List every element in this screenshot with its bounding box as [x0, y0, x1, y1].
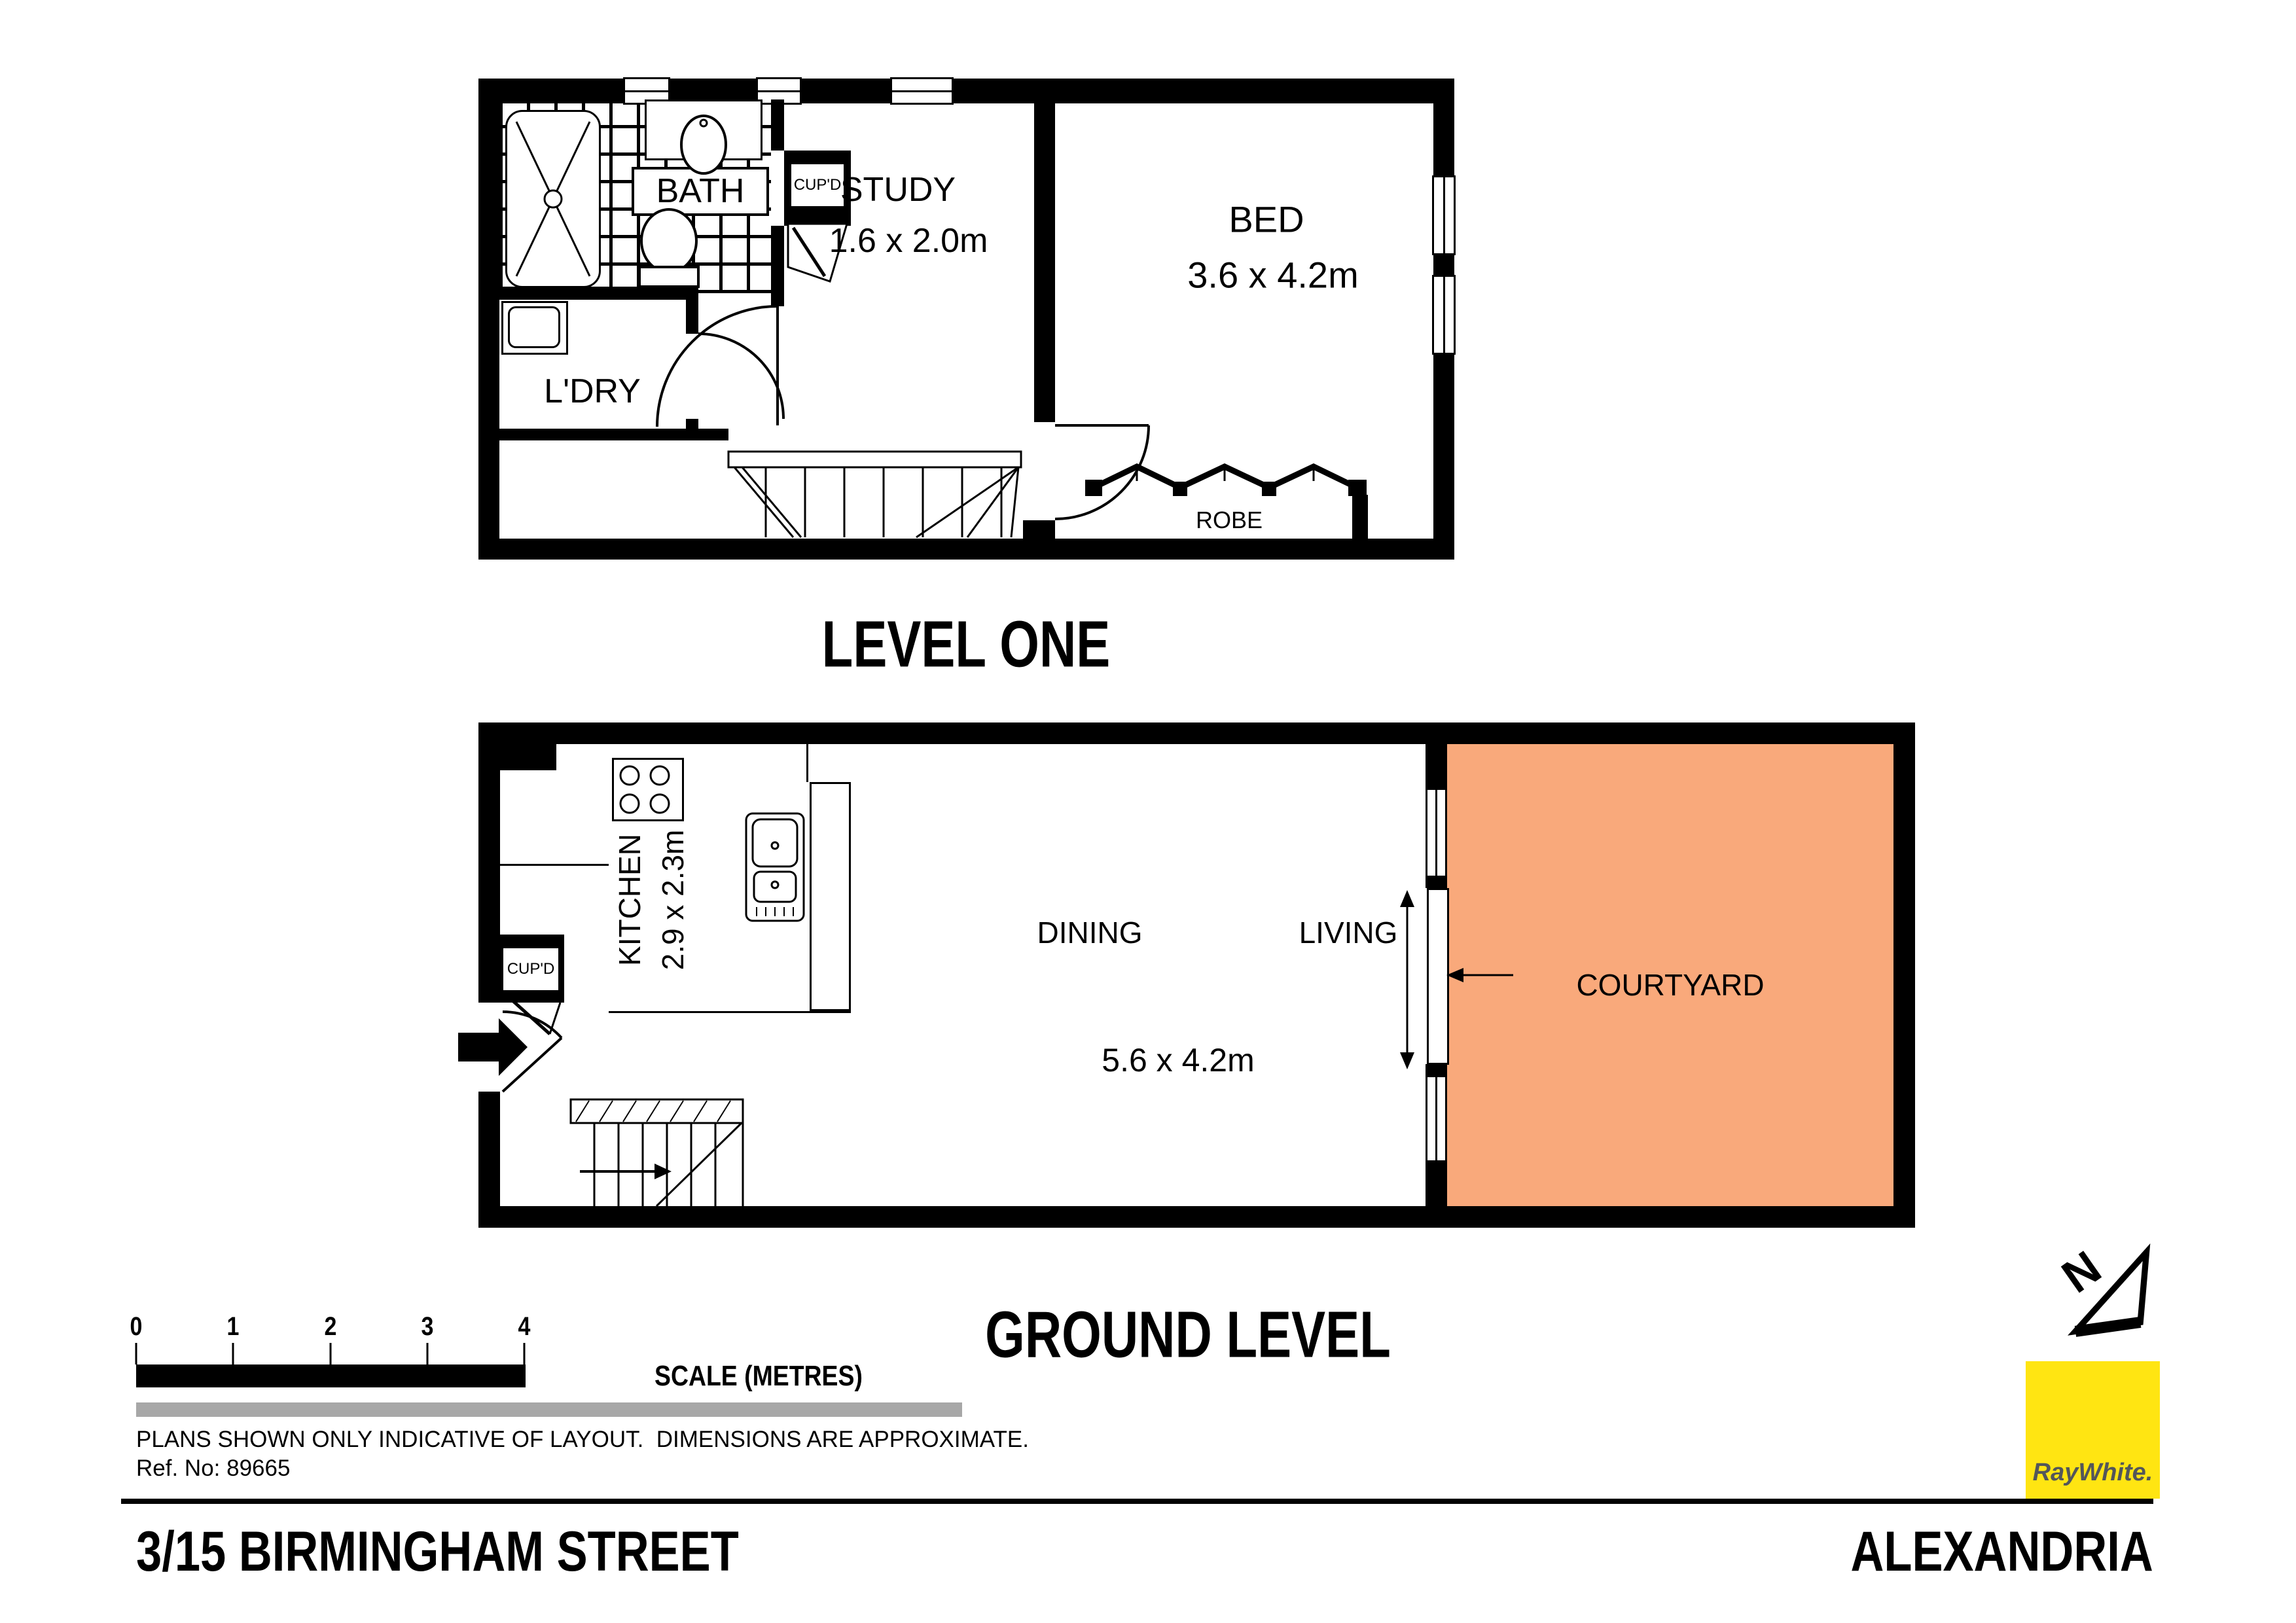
scale-gray-bar	[136, 1402, 962, 1417]
room-label-dining: DINING	[1037, 915, 1143, 950]
l1-wall-bath-laundry-divider	[499, 287, 698, 300]
level-one-title: LEVEL ONE	[822, 607, 1111, 683]
room-label-robe: ROBE	[1196, 507, 1263, 534]
kitchen-counter	[810, 782, 851, 1011]
window-icon	[1426, 1075, 1447, 1162]
scale-tick-0: 0	[130, 1312, 143, 1342]
scale-tick-1: 1	[227, 1312, 240, 1342]
scale-tick-2: 2	[325, 1312, 337, 1342]
footer-address: 3/15 BIRMINGHAM STREET	[136, 1520, 739, 1584]
room-label-bath: BATH	[656, 171, 745, 211]
g-wall-courtyard-b	[1426, 878, 1447, 888]
g-wall-right	[1893, 722, 1915, 1228]
sliding-door-icon	[1427, 888, 1449, 1065]
laundry-sink-bowl	[508, 306, 560, 348]
vanity-icon	[645, 99, 762, 160]
kitchen-bench-bottom	[609, 1011, 851, 1013]
north-arrow-icon: N	[2053, 1241, 2146, 1331]
footer-divider	[121, 1499, 2153, 1504]
l1-wall-study-bed-divider	[1034, 99, 1055, 422]
scale-tick-4: 4	[518, 1312, 531, 1342]
room-label-kitchen: KITCHEN	[612, 834, 647, 966]
g-wall-left-b	[478, 1092, 500, 1206]
room-label-laundry: L'DRY	[544, 372, 641, 411]
ref-number: Ref. No: 89665	[136, 1455, 290, 1482]
room-label-bed: BED	[1229, 198, 1304, 241]
g-wall-bottom	[478, 1206, 1915, 1228]
room-label-living: LIVING	[1299, 915, 1398, 950]
raywhite-logo-text: RayWhite.	[2026, 1459, 2160, 1487]
stove-icon	[612, 758, 684, 821]
l1-wall-bottom	[478, 539, 1454, 560]
l1-wall-bath-right-lower	[771, 226, 784, 306]
room-dims-study: 1.6 x 2.0m	[829, 221, 988, 260]
g-wall-courtyard-c	[1426, 1064, 1447, 1075]
window-icon	[1432, 175, 1456, 255]
scale-bar-fill	[136, 1364, 526, 1387]
window-icon	[1432, 275, 1456, 355]
l1-wall-laundry-right-a	[686, 300, 698, 334]
floorplan-page: N BATH CUP'D STUDY 1.6 x 2.0m BED 3.6 x …	[0, 0, 2296, 1623]
l1-wall-laundry-bottom	[499, 429, 728, 440]
ground-level-title: GROUND LEVEL	[985, 1298, 1391, 1373]
room-label-cupd-g: CUP'D	[507, 960, 555, 978]
room-label-cupd-l1: CUP'D	[794, 176, 842, 194]
disclaimer-text: PLANS SHOWN ONLY INDICATIVE OF LAYOUT. D…	[136, 1427, 1029, 1453]
l1-wall-laundry-right-b	[686, 419, 698, 429]
kitchen-bench-line-h	[500, 864, 609, 866]
g-wall-top	[478, 722, 1915, 744]
window-icon	[1426, 788, 1447, 878]
footer-suburb: ALEXANDRIA	[1851, 1520, 2153, 1584]
kitchen-counter-line	[806, 744, 808, 782]
scale-bar-label: SCALE (METRES)	[655, 1360, 863, 1393]
room-label-courtyard: COURTYARD	[1576, 967, 1764, 1003]
g-wall-left-a	[478, 744, 500, 935]
shower-icon	[505, 110, 601, 288]
room-dims-kitchen: 2.9 x 2.3m	[655, 830, 691, 971]
svg-text:N: N	[2053, 1241, 2110, 1303]
room-dims-bed: 3.6 x 4.2m	[1187, 254, 1358, 296]
l1-wall-left	[478, 79, 499, 560]
room-dims-living: 5.6 x 4.2m	[1102, 1041, 1254, 1079]
scale-tick-3: 3	[422, 1312, 434, 1342]
room-label-study: STUDY	[840, 170, 956, 209]
g-wall-courtyard-d	[1426, 1162, 1447, 1206]
window-icon	[890, 77, 954, 105]
raywhite-logo: RayWhite.	[2026, 1361, 2160, 1499]
l1-wall-bath-right-upper	[771, 99, 784, 151]
g-wall-courtyard-a	[1426, 744, 1447, 788]
l1-wall-bed-door-stub	[1034, 520, 1055, 539]
